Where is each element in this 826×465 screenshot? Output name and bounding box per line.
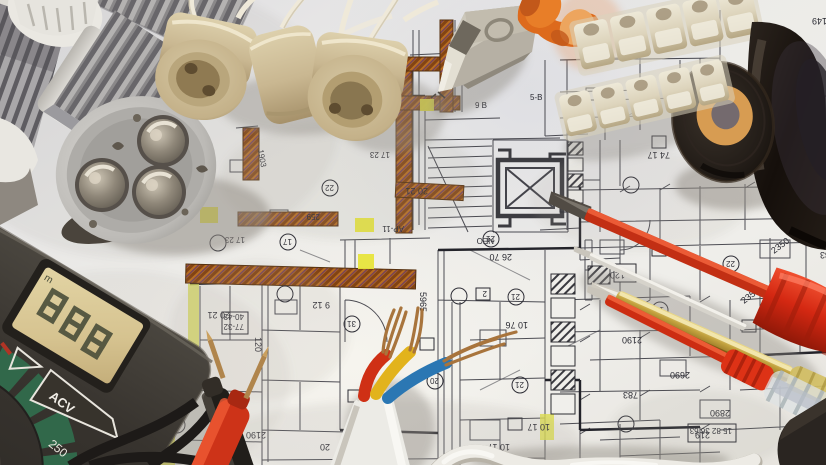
svg-text:149: 149 xyxy=(812,16,826,26)
svg-text:2190: 2190 xyxy=(622,335,642,345)
svg-text:83: 83 xyxy=(820,250,826,260)
svg-text:10 76: 10 76 xyxy=(505,320,528,330)
svg-text:783: 783 xyxy=(623,390,638,400)
svg-text:20: 20 xyxy=(430,376,439,385)
svg-text:2: 2 xyxy=(482,289,487,298)
svg-text:2690: 2690 xyxy=(670,370,690,380)
svg-text:26 70: 26 70 xyxy=(489,252,512,262)
svg-text:21: 21 xyxy=(515,380,524,389)
svg-text:21: 21 xyxy=(511,292,520,301)
svg-text:NEO: NEO xyxy=(477,236,494,245)
svg-text:5-B: 5-B xyxy=(530,93,542,102)
svg-text:22: 22 xyxy=(726,259,735,268)
svg-text:17: 17 xyxy=(283,237,292,246)
